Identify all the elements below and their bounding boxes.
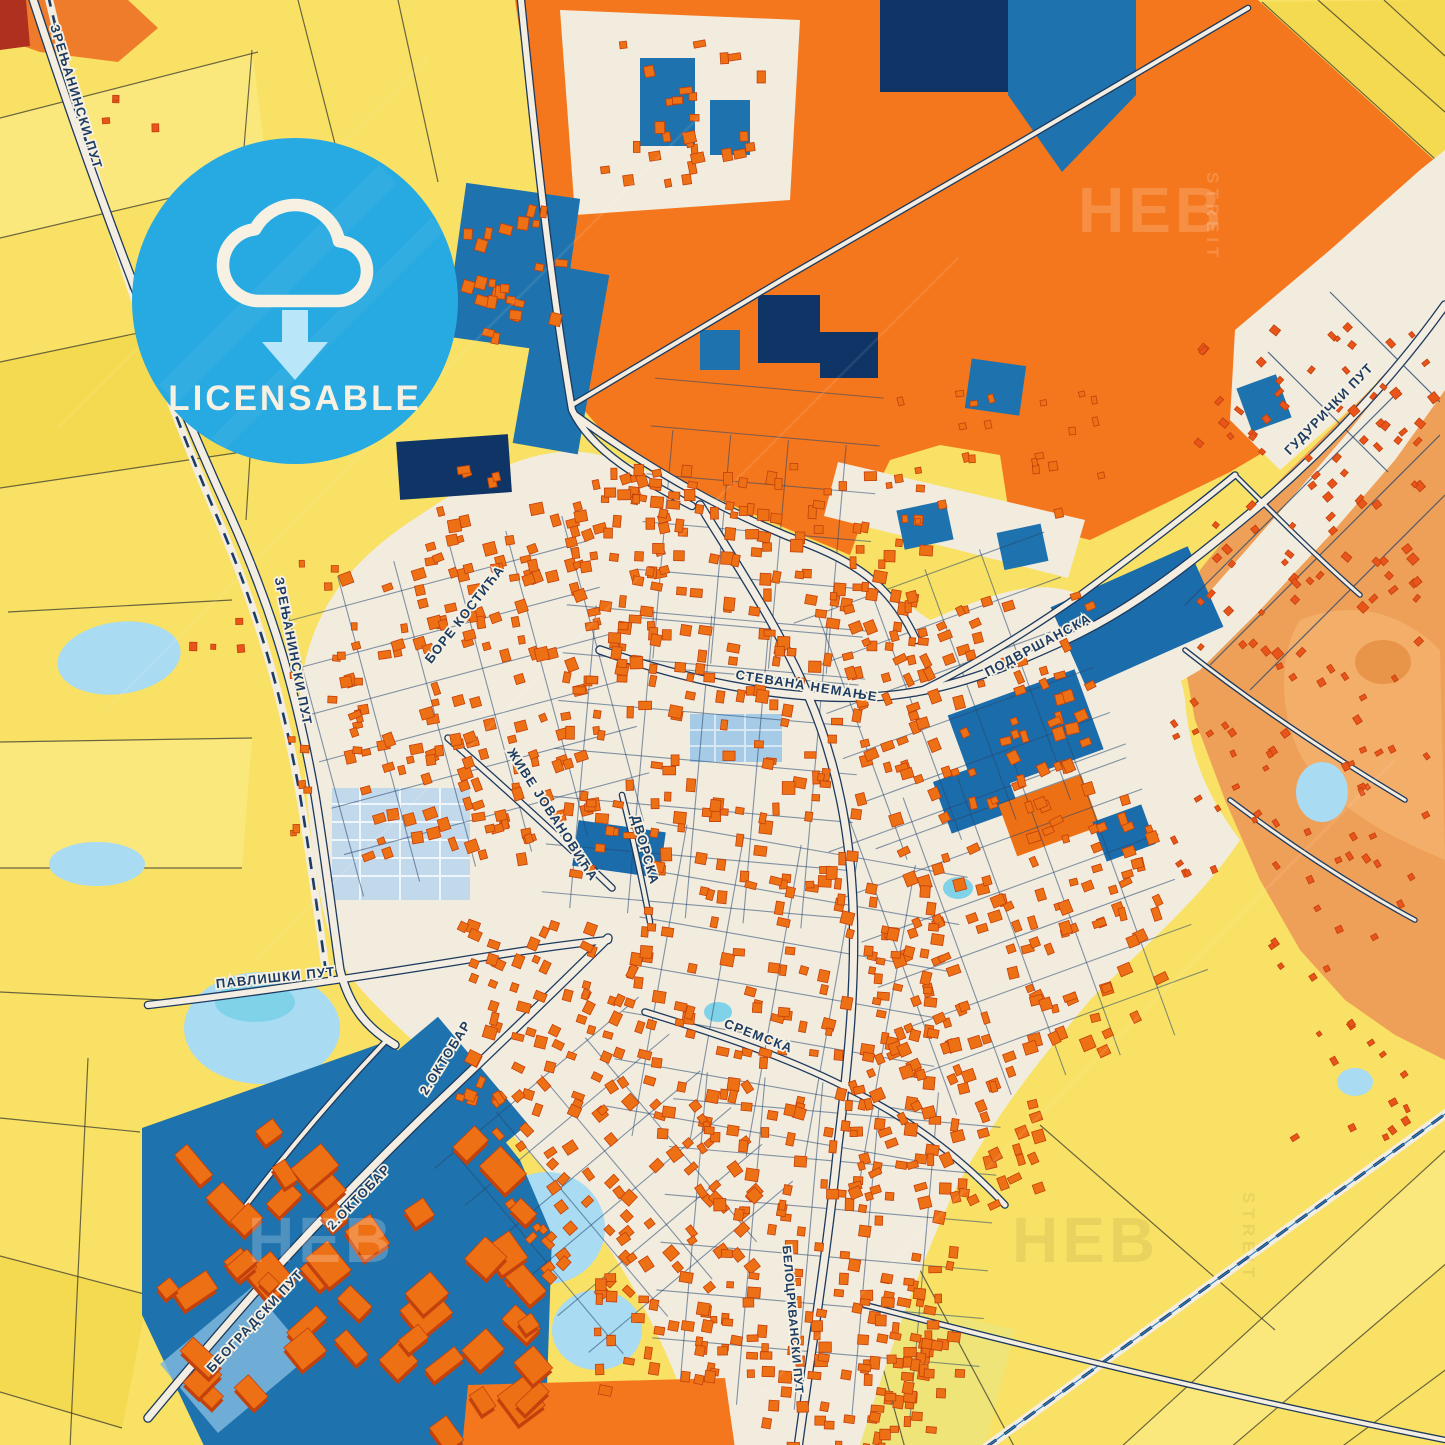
orange-field-south [462,1378,735,1445]
watermark-heb-bottomright: HEB [1012,1204,1159,1276]
watermark-heb-bottomleft: HEB [248,1204,395,1276]
red-corner-patch [0,0,30,50]
licensable-badge[interactable]: LICENSABLE [128,134,462,468]
badge-label: LICENSABLE [168,379,422,418]
watermark-streit-topright: STREIT [1203,172,1222,262]
map-poster: ЗРЕЊАНИНСКИ ПУТ ЗРЕЊАНИНСКИ ПУТ БОРЕ КОС… [0,0,1445,1445]
watermark-streit-bottomright: STREIT [1239,1192,1258,1282]
terrain-knoll [1355,640,1411,684]
